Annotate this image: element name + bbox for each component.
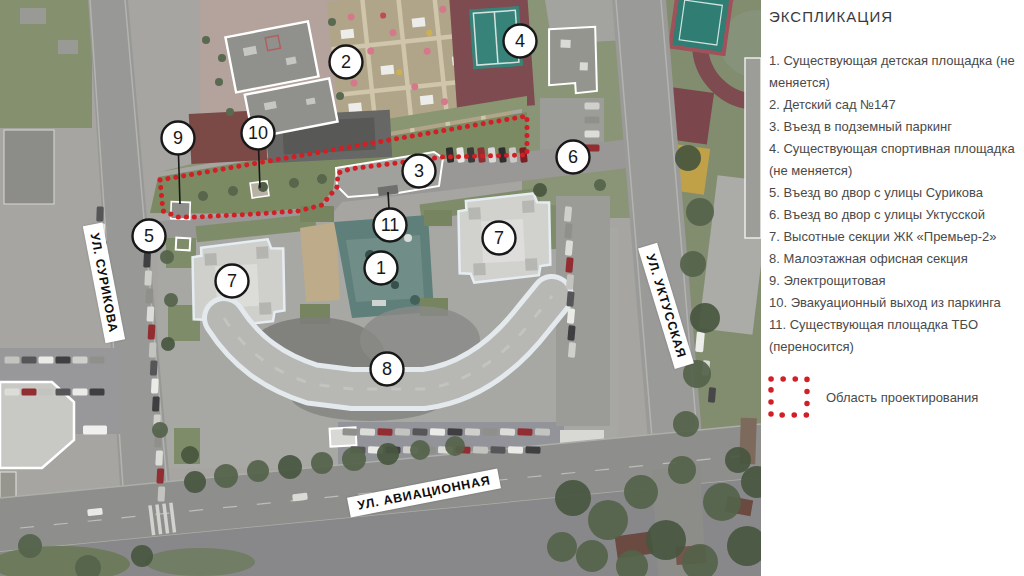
aerial-map: 12345677891011 УЛ. СУРИКОВАУЛ. УКТУССКАЯ…: [0, 0, 761, 576]
legend-item-1: 1. Существующая детская площадка (не мен…: [769, 50, 1019, 94]
legend-item-6: 6. Въезд во двор с улицы Уктусской: [769, 204, 1019, 226]
legend-item-7: 7. Высотные секции ЖК «Премьер-2»: [769, 226, 1019, 248]
school-building: [547, 25, 599, 94]
legend-list: 1. Существующая детская площадка (не мен…: [769, 50, 1019, 358]
legend-item-2: 2. Детский сад №147: [769, 94, 1019, 116]
legend-title: ЭКСПЛИКАЦИЯ: [769, 8, 1024, 25]
electro-structure: [171, 202, 191, 220]
site-plan-page: 12345677891011 УЛ. СУРИКОВАУЛ. УКТУССКАЯ…: [0, 0, 1024, 576]
legend-item-10: 10. Эвакуационный выход из паркинга: [769, 292, 1019, 314]
project-area-swatch: [766, 374, 812, 420]
legend-item-11: 11. Существующая площадка ТБО (переносит…: [769, 314, 1019, 358]
legend-item-4: 4. Существующая спортивная площадка (не …: [769, 138, 1019, 182]
legend-item-3: 3. Въезд в подземный паркинг: [769, 116, 1019, 138]
residential-tower-right: [456, 193, 553, 284]
sand-area: [300, 222, 340, 302]
legend-area-row: Область проектирования: [766, 374, 978, 420]
legend-item-9: 9. Электрощитовая: [769, 270, 1019, 292]
sports-field: [449, 0, 535, 111]
legend-item-5: 5. Въезд во двор с улицы Сурикова: [769, 182, 1019, 204]
legend-item-8: 8. Малоэтажная офисная секция: [769, 248, 1019, 270]
legend-panel: ЭКСПЛИКАЦИЯ 1. Существующая детская площ…: [761, 0, 1024, 576]
project-area-label: Область проектирования: [826, 390, 978, 405]
building-east-edge: [745, 58, 761, 238]
